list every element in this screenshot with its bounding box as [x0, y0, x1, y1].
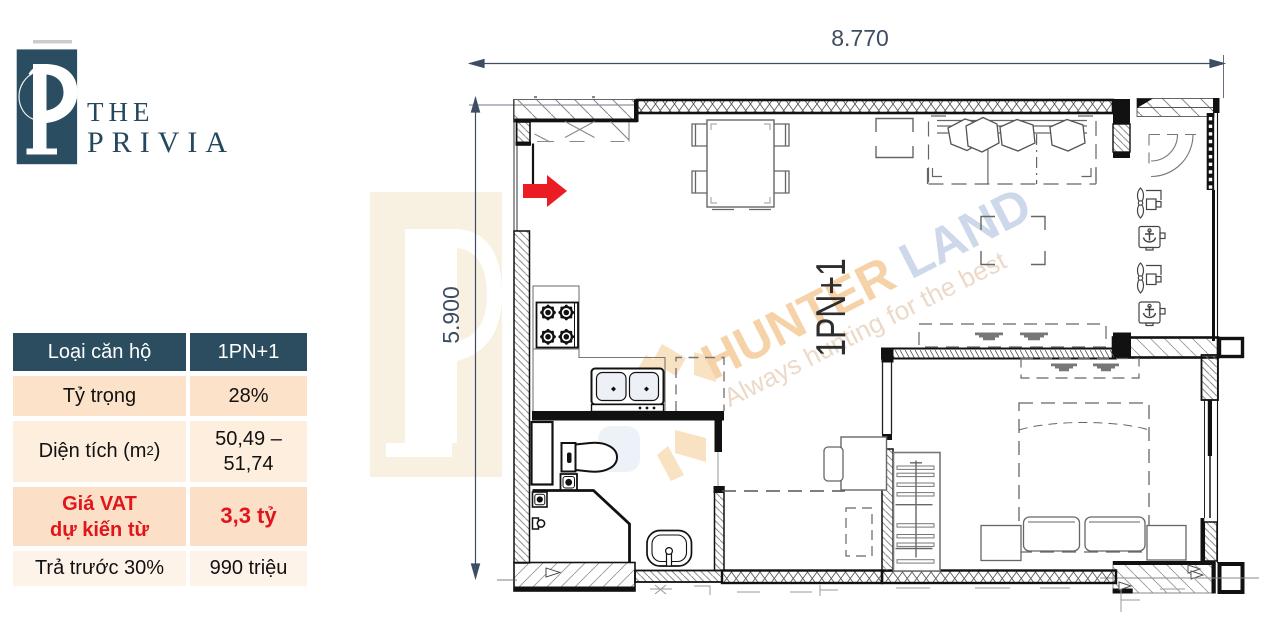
svg-text:PRIVIA: PRIVIA — [87, 126, 235, 159]
svg-text:8.770: 8.770 — [831, 25, 889, 51]
svg-text:1PN+1: 1PN+1 — [807, 258, 854, 356]
svg-text:THE: THE — [87, 97, 154, 127]
svg-text:5.900: 5.900 — [438, 286, 464, 344]
